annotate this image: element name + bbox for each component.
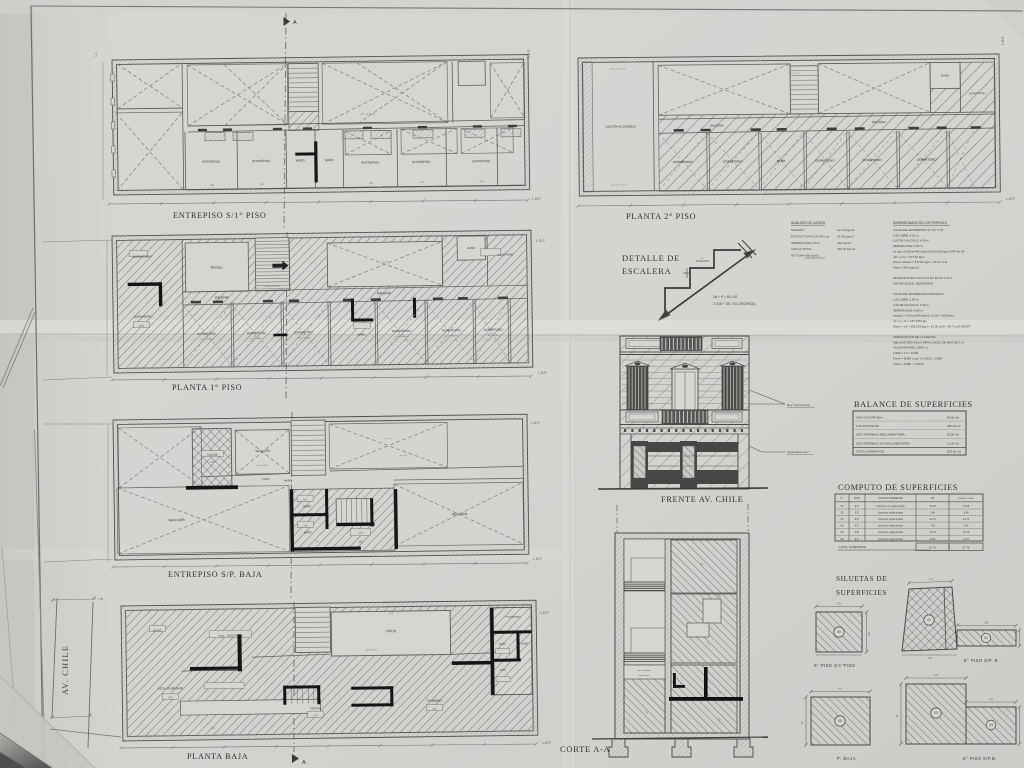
svg-text:PASO: PASO (284, 479, 292, 483)
svg-text:SUP. CONSTRUIDA :: SUP. CONSTRUIDA : (856, 416, 884, 420)
svg-text:Vacio s/PB: Vacio s/PB (255, 449, 270, 453)
svg-text:33,45 kg/m2: 33,45 kg/m2 (837, 234, 854, 238)
svg-text:12.67: 12.67 (929, 538, 936, 541)
svg-text:Wnec = mf = 185.578 kgm = 1: Wnec = mf = 185.578 kgm = 13.39 cm3 < 54… (893, 324, 971, 328)
svg-text:SILUETAS DE: SILUETAS DE (836, 575, 887, 583)
svg-text:PASO: PASO (500, 669, 507, 672)
svg-text:A031: A031 (210, 461, 216, 464)
svg-text:E° PISO S/P. B.: E° PISO S/P. B. (964, 658, 999, 663)
svg-text:Fmax = 5/384 x qL4 = 0.012: Fmax = 5/384 x qL4 = 0.0125 < 0.086 (893, 356, 942, 360)
svg-text:PATIO: PATIO (153, 628, 162, 632)
svg-text:Fadm: 1400 kg/cm2: Fadm: 1400 kg/cm2 (893, 266, 919, 270)
svg-text:MADERA:: MADERA: (791, 228, 805, 232)
svg-text:SEPARACION: 0.50 m: SEPARACION: 0.50 m (893, 244, 923, 248)
svg-text:VERIFICACION DE LA FLECHA: VERIFICACION DE LA FLECHA (893, 335, 935, 339)
svg-text:BAÑO: BAÑO (467, 245, 476, 250)
svg-text:01: 01 (927, 618, 931, 622)
svg-text:ENTREPISO S/P. BAJA: ENTREPISO S/P. BAJA (168, 570, 263, 579)
svg-text:tech. s/t terr.: tech. s/t terr. (789, 72, 800, 75)
svg-text:SE TOMA 400 kg/m2: SE TOMA 400 kg/m2 (791, 254, 819, 258)
svg-text:ENTREPISO: ENTREPISO (412, 160, 431, 164)
svg-text:LOCAL (CAFE BAR): LOCAL (CAFE BAR) (157, 686, 183, 690)
svg-text:SUPERFICIES: SUPERFICIES (836, 589, 887, 597)
svg-text:M2: M2 (931, 497, 935, 500)
svg-text:Rev° simil piedra: Rev° simil piedra (787, 403, 810, 407)
svg-text:COCINA: COCINA (207, 453, 218, 457)
svg-text:BAÑO: BAÑO (296, 157, 305, 162)
svg-text:s/permiso reglamentaria: s/permiso reglamentaria (878, 538, 904, 541)
svg-text:03: 03 (934, 711, 938, 715)
svg-text:A06: A06 (432, 708, 437, 711)
svg-text:14.28: 14.28 (963, 505, 970, 508)
svg-text:5.1: 5.1 (929, 578, 933, 581)
svg-text:PLANTA 2° PISO: PLANTA 2° PISO (626, 212, 696, 221)
svg-text:04: 04 (989, 723, 993, 727)
svg-text:8.8: 8.8 (868, 632, 871, 636)
svg-text:67.76: 67.76 (963, 546, 970, 550)
svg-text:ENTREPISO: ENTREPISO (202, 160, 221, 164)
svg-text:L.D.P.: L.D.P. (527, 49, 531, 58)
svg-text:COMPUTO DE SUPERFICIES: COMPUTO DE SUPERFICIES (838, 483, 958, 492)
svg-text:DORMITORIO: DORMITORIO (917, 158, 937, 162)
svg-text:BAÑO: BAÑO (941, 72, 950, 77)
svg-text:nivel vereda: nivel vereda (639, 675, 651, 677)
svg-text:ENTREPISO S/1° PISO: ENTREPISO S/1° PISO (173, 211, 266, 220)
svg-text:DORMITORIO: DORMITORIO (247, 331, 267, 335)
svg-text:1/500 x 4.3 = 0.086: 1/500 x 4.3 = 0.086 (893, 351, 919, 355)
svg-text:DORMITORIO: DORMITORIO (723, 159, 743, 163)
svg-text:BAÑO: BAÑO (521, 642, 528, 645)
svg-text:12.75: 12.75 (929, 531, 936, 534)
svg-text:escala Ent. 1.80 m.: escala Ent. 1.80 m. (265, 285, 282, 288)
svg-text:P.B.: P.B. (855, 531, 860, 534)
svg-text:PISO: PISO (854, 497, 860, 500)
svg-text:PATIO: PATIO (387, 629, 397, 633)
svg-text:SOBRECARGA UTIL:: SOBRECARGA UTIL: (791, 241, 820, 245)
svg-text:MAYOR QUE EL NECESARIO: MAYOR QUE EL NECESARIO (893, 282, 934, 286)
svg-text:L.D.P.: L.D.P. (1006, 197, 1015, 201)
svg-text:P/BL Jard N pto: P/BL Jard N pto (360, 113, 376, 116)
svg-text:GALERIA: GALERIA (215, 295, 230, 299)
svg-text:TOTAL SUPERFICIE: TOTAL SUPERFICIE (839, 545, 866, 549)
svg-text:Terraza: Terraza (210, 265, 222, 269)
svg-text:SEPARACION: 0.50 m: SEPARACION: 0.50 m (893, 308, 923, 312)
svg-text:s/permiso reglamentaria: s/permiso reglamentaria (878, 525, 904, 528)
svg-text:53,50 m2: 53,50 m2 (947, 433, 959, 437)
svg-text:q=qcpd x 0.50 q=500 kg/m2 x: q=qcpd x 0.50 q=500 kg/m2 x 0.50 = 250 k… (893, 314, 954, 318)
svg-text:E° PISO S/1°PISO: E° PISO S/1°PISO (814, 663, 856, 668)
svg-text:Tech. Ent. 1.80 m.: Tech. Ent. 1.80 m. (611, 184, 628, 187)
svg-text:DETALLE DE: DETALLE DE (622, 253, 680, 263)
svg-text:Tech. Ent. 1.80 m.: Tech. Ent. 1.80 m. (610, 68, 627, 71)
svg-text:DORMITORIO: DORMITORIO (815, 159, 835, 163)
svg-text:E° PISO S/P.B.: E° PISO S/P.B. (963, 756, 997, 761)
svg-text:ENTREPISO: ENTREPISO (361, 161, 380, 165)
svg-text:SE ADOPTO IPN 12 CUYO Wx ES 54: SE ADOPTO IPN 12 CUYO Wx ES 54.7 cm3 (893, 276, 952, 280)
svg-text:DIMENSIONADO DE LOS PERFILE: DIMENSIONADO DE LOS PERFILES (893, 221, 947, 225)
svg-text:LUZ DE CALCULO: 4.30 m: LUZ DE CALCULO: 4.30 m (893, 239, 929, 243)
svg-text:BAÑO: BAÑO (325, 157, 334, 162)
svg-text:SUP. S/PERMISO REGLAMENTARIA :: SUP. S/PERMISO REGLAMENTARIA : (856, 433, 906, 437)
svg-text:2 X16 + 25 = 61 (TEORICA): 2 X16 + 25 = 61 (TEORICA) (713, 302, 755, 306)
svg-text:PASO: PASO (262, 477, 269, 481)
svg-text:A03: A03 (303, 524, 308, 527)
svg-text:alt 4 pta: alt 4 pta (381, 260, 389, 263)
svg-text:VIGAS DEL ENTREPISO POSICION 2: VIGAS DEL ENTREPISO POSICION 2 (893, 292, 944, 296)
svg-text:4.6: 4.6 (838, 688, 842, 691)
svg-text:DORMITORIO: DORMITORIO (673, 160, 693, 164)
svg-text:14.28: 14.28 (929, 505, 936, 508)
svg-text:14,28 m2: 14,28 m2 (947, 441, 959, 445)
svg-text:P. BAJA: P. BAJA (837, 756, 856, 761)
svg-text:ANALISIS DE CARGA: ANALISIS DE CARGA (791, 221, 826, 225)
svg-text:A04: A04 (358, 532, 363, 535)
svg-text:BALANCE DE SUPERFICIES: BALANCE DE SUPERFICIES (854, 400, 973, 409)
svg-text:Fmax = 0.086 < 0.0125: Fmax = 0.086 < 0.0125 (893, 362, 924, 366)
svg-text:93,06 m2: 93,06 m2 (947, 416, 959, 420)
svg-text:ESCALERA: ESCALERA (622, 266, 672, 276)
svg-text:3.84: 3.84 (930, 512, 935, 515)
svg-text:A02: A02 (303, 498, 308, 501)
svg-text:Carpinteria met.°: Carpinteria met.° (787, 450, 810, 454)
svg-text:COCINA: COCINA (310, 706, 321, 710)
svg-text:tech. entrepiso: tech. entrepiso (251, 337, 263, 340)
svg-text:E.P.: E.P. (855, 505, 860, 508)
svg-text:SUP. EXISTENTE :: SUP. EXISTENTE : (856, 424, 881, 428)
svg-text:SUPER. LOCAL: SUPER. LOCAL (958, 497, 974, 500)
svg-text:L.D.P.: L.D.P. (531, 421, 540, 425)
svg-text:total 10.90 m.: total 10.90 m. (366, 648, 379, 651)
svg-text:tech. entrepiso: tech. entrepiso (446, 334, 458, 337)
svg-text:7.96: 7.96 (98, 597, 104, 601)
svg-text:7.52: 7.52 (964, 525, 969, 528)
svg-text:A: A (302, 760, 306, 766)
svg-text:mf= q x l2 = 577.81 kgm: mf= q x l2 = 577.81 kgm (893, 255, 925, 259)
svg-text:1.56: 1.56 (984, 622, 989, 625)
svg-text:s/permiso reglamentaria: s/permiso reglamentaria (878, 518, 904, 521)
svg-text:DORMITORIO: DORMITORIO (294, 330, 314, 334)
svg-text:L.D.P.: L.D.P. (1001, 36, 1005, 45)
svg-text:VALOR MAXIMO 1/500 x L: VALOR MAXIMO 1/500 x L (893, 346, 929, 350)
svg-text:06: 06 (837, 630, 841, 634)
svg-text:DORMITORIO: DORMITORIO (484, 328, 504, 332)
svg-text:Vacio s/PD: Vacio s/PD (452, 512, 468, 516)
svg-text:300 kg/m2: 300 kg/m2 (837, 241, 851, 245)
svg-text:DORMITORIO: DORMITORIO (442, 328, 462, 332)
svg-text:GALERIA: GALERIA (710, 124, 725, 128)
svg-text:12.75: 12.75 (963, 531, 970, 534)
svg-text:12.67: 12.67 (963, 538, 970, 541)
svg-text:FUNEBRES: FUNEBRES (427, 699, 442, 703)
svg-text:Alt conn: Alt conn (400, 454, 407, 457)
svg-text:Wnec= Wmax = 577.81 kgm =: Wnec= Wmax = 577.81 kgm = 41.27 cm3 (893, 260, 947, 264)
svg-text:BAÑO: BAÑO (777, 158, 786, 163)
svg-text:alt 9 pta: alt 9 pta (385, 437, 393, 440)
svg-text:ENTREPISO: ENTREPISO (252, 159, 271, 163)
svg-text:7.52: 7.52 (930, 525, 935, 528)
svg-text:5.5: 5.5 (837, 603, 841, 606)
svg-text:LUZ LIBRE: 4.25 m: LUZ LIBRE: 4.25 m (893, 233, 919, 237)
svg-text:HP: HP (359, 540, 363, 544)
svg-text:q= qcm.x0.50 q=400 kg/m2x0.: q= qcm.x0.50 q=400 kg/m2x0.50=200 kg/m I… (893, 249, 965, 253)
svg-text:L.D.P.: L.D.P. (542, 741, 551, 745)
svg-text:1401: 1401 (138, 324, 144, 328)
svg-text:Vacio s/PB: Vacio s/PB (168, 518, 185, 522)
svg-text:tech. entrepiso: tech. entrepiso (396, 335, 408, 338)
svg-text:LUZ LIBRE: 2.40 m: LUZ LIBRE: 2.40 m (893, 298, 919, 302)
svg-text:A: A (293, 20, 297, 26)
svg-text:DORMITORIO: DORMITORIO (133, 254, 153, 258)
svg-text:DORMITORIO: DORMITORIO (862, 158, 882, 162)
svg-text:2A + P = 60 / 62: 2A + P = 60 / 62 (713, 295, 737, 299)
svg-text:mf = q x l2 = 187.578 kgm: mf = q x l2 = 187.578 kgm (893, 319, 928, 323)
svg-text:L.D.P.: L.D.P. (532, 197, 541, 201)
svg-text:GALERIA: GALERIA (377, 291, 392, 295)
svg-text:05: 05 (838, 719, 842, 723)
svg-text:PLANTA 1° PISO: PLANTA 1° PISO (172, 383, 242, 392)
svg-text:L.D.P.: L.D.P. (540, 611, 549, 615)
svg-text:105: 105 (168, 696, 173, 699)
svg-text:L.D.P.: L.D.P. (533, 557, 542, 561)
svg-text:tech. entrepiso: tech. entrepiso (637, 669, 651, 672)
svg-text:BAÑO: BAÑO (499, 643, 506, 646)
svg-text:E.P.: E.P. (855, 512, 860, 515)
svg-text:AZOTEA ACCESIBLE: AZOTEA ACCESIBLE (606, 124, 636, 128)
svg-text:DORMITORIO: DORMITORIO (197, 332, 217, 336)
svg-text:02: 02 (984, 636, 988, 640)
svg-text:823,00 m2: 823,00 m2 (947, 450, 962, 454)
svg-text:DORMITORIO: DORMITORIO (392, 329, 412, 333)
svg-text:L.D.P.: L.D.P. (536, 239, 545, 243)
svg-text:FRENTE AV. CHILE: FRENTE AV. CHILE (661, 495, 744, 504)
svg-text:OBLIGATORIO SOLO PARA LUCES DE: OBLIGATORIO SOLO PARA LUCES DE MAS DE 7 … (893, 340, 964, 344)
svg-text:tech. entrepiso: tech. entrepiso (298, 336, 310, 339)
svg-text:DORMITORIO: DORMITORIO (497, 253, 513, 256)
svg-text:5.8: 5.8 (928, 657, 932, 660)
svg-text:total s.t 225 a.: total s.t 225 a. (257, 464, 269, 467)
svg-text:14.72: 14.72 (963, 518, 970, 521)
svg-text:CORTE A-A: CORTE A-A (560, 744, 611, 754)
svg-text:A05: A05 (313, 714, 318, 717)
svg-text:s/permiso reglamentaria: s/permiso reglamentaria (878, 512, 904, 515)
svg-text:SUP. S/PERMISO NO REGLAMENTARI: SUP. S/PERMISO NO REGLAMENTARIA : (856, 441, 911, 445)
svg-text:s/permiso no reglamentaria: s/permiso no reglamentaria (876, 505, 905, 508)
svg-text:3.84: 3.84 (964, 512, 969, 515)
svg-text:1.8: 1.8 (989, 698, 993, 701)
svg-text:67.76: 67.76 (929, 546, 936, 550)
svg-text:VIGAS DEL ENTREPISO V1: D1 Y D: VIGAS DEL ENTREPISO V1: D1 Y D2 (893, 228, 944, 232)
svg-text:E.P.: E.P. (855, 525, 860, 528)
svg-text:ENTREPISO: ENTREPISO (472, 159, 491, 163)
svg-text:PLANTA BAJA: PLANTA BAJA (187, 752, 248, 761)
svg-text:TIPO DE SUPERFICIE: TIPO DE SUPERFICIE (878, 497, 903, 500)
svg-text:TOTAL SUPERFICIE :: TOTAL SUPERFICIE : (856, 450, 886, 454)
svg-text:E/ MAQUINAS: E/ MAQUINAS (506, 615, 522, 618)
svg-text:DORMITORIO: DORMITORIO (134, 314, 154, 318)
svg-text:CARGA TOTAL:: CARGA TOTAL: (791, 247, 813, 251)
svg-text:AV. CHILE: AV. CHILE (60, 645, 70, 695)
svg-text:1/2: 1/2 (934, 674, 938, 677)
svg-text:LUZ DE CALCULO: 2.45 m: LUZ DE CALCULO: 2.45 m (893, 303, 929, 307)
svg-text:tech. entrepiso: tech. entrepiso (201, 338, 213, 341)
svg-text:L.D.P.: L.D.P. (538, 371, 547, 375)
svg-text:E.P.: E.P. (855, 538, 860, 541)
svg-text:ESTRUCTURA CON IPN: qe: ESTRUCTURA CON IPN: qe (791, 234, 830, 238)
svg-text:tech. entrepiso: tech. entrepiso (488, 334, 500, 337)
svg-text:GALERIA: GALERIA (872, 120, 887, 124)
svg-text:686,18 m2: 686,18 m2 (947, 424, 961, 428)
svg-text:348,45 kg/m2: 348,45 kg/m2 (837, 247, 856, 251)
svg-text:qm 15 kg/m2: qm 15 kg/m2 (837, 228, 855, 232)
svg-text:E.P.: E.P. (855, 518, 860, 521)
svg-text:s/permiso reglamentaria: s/permiso reglamentaria (878, 531, 904, 534)
svg-text:14.72: 14.72 (929, 518, 936, 521)
svg-text:DORMITORIO: DORMITORIO (969, 92, 985, 95)
svg-text:N °: N ° (840, 497, 844, 500)
